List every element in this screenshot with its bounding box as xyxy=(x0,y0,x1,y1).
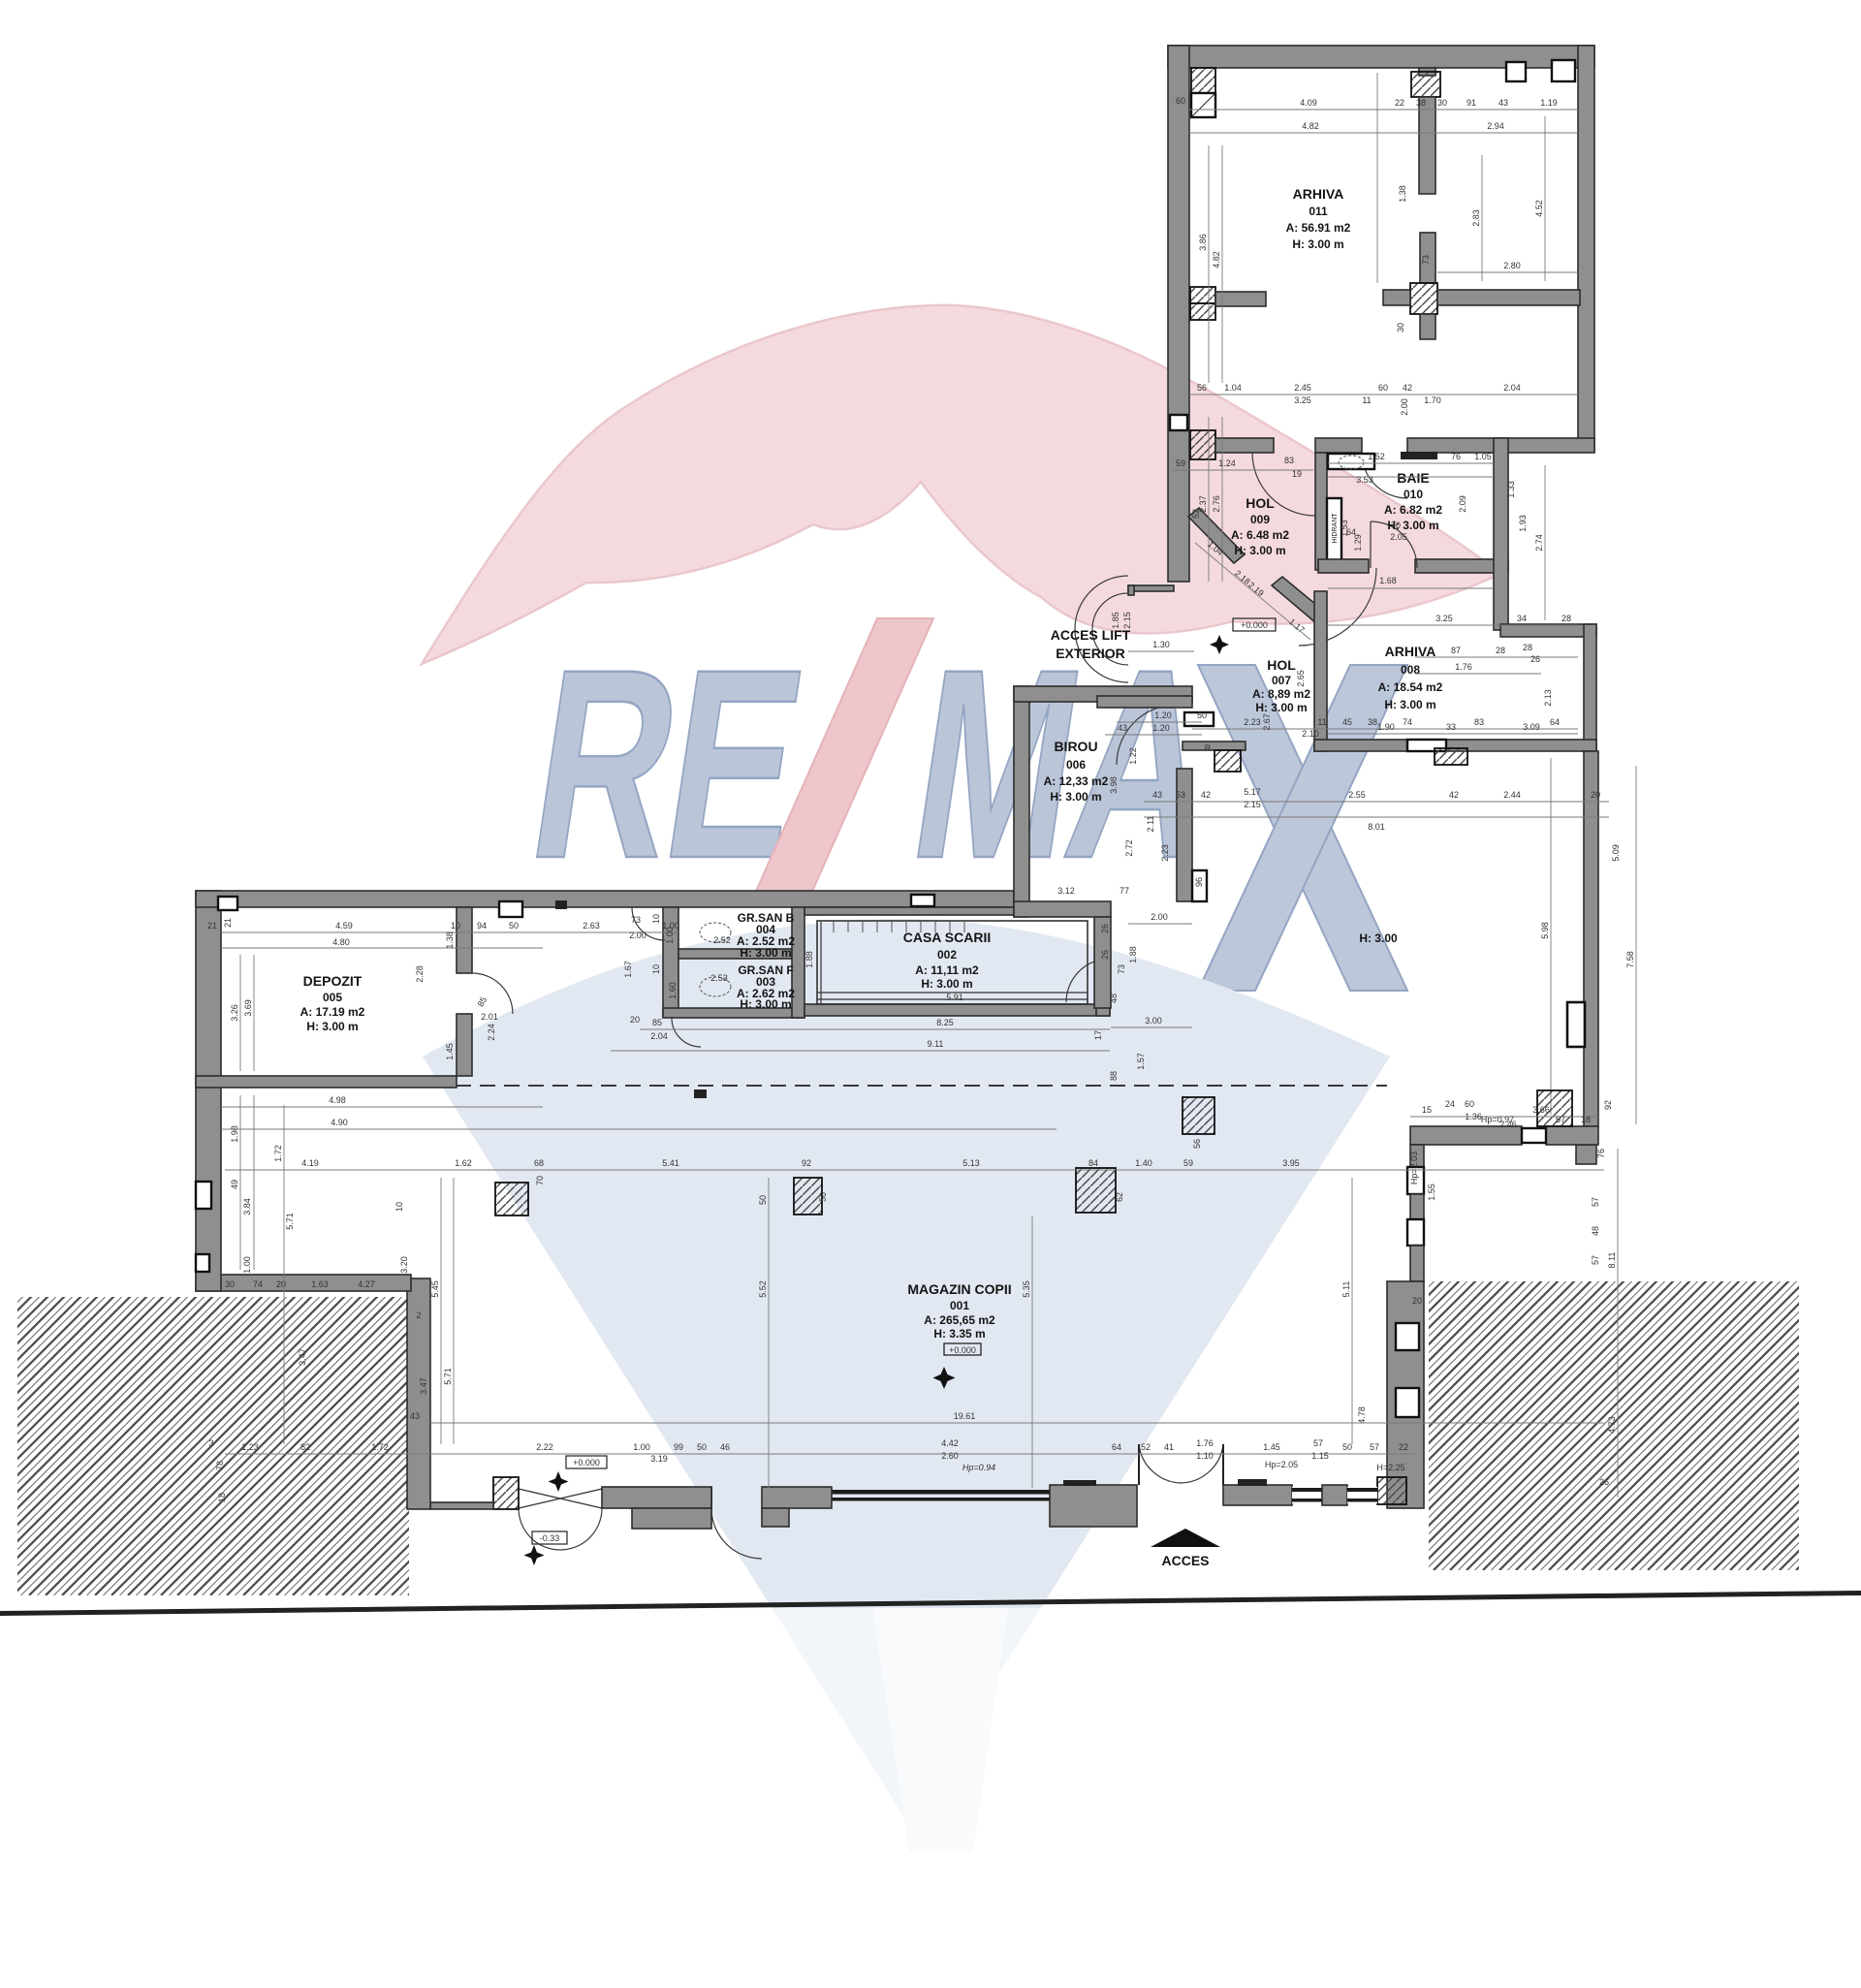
svg-text:26: 26 xyxy=(1100,950,1110,960)
svg-text:42: 42 xyxy=(1201,790,1211,800)
svg-text:Hp=0.94: Hp=0.94 xyxy=(962,1463,995,1472)
svg-text:007: 007 xyxy=(1272,674,1291,687)
svg-text:HOL: HOL xyxy=(1267,657,1296,673)
svg-text:2.53: 2.53 xyxy=(710,973,728,983)
svg-text:60: 60 xyxy=(1378,383,1388,393)
svg-text:H: 3.00 m: H: 3.00 m xyxy=(921,977,972,991)
svg-text:1.63: 1.63 xyxy=(311,1279,329,1289)
svg-text:45: 45 xyxy=(1342,717,1352,727)
svg-text:MAGAZIN COPII: MAGAZIN COPII xyxy=(907,1281,1011,1297)
svg-text:5.35: 5.35 xyxy=(1022,1280,1031,1298)
svg-text:96: 96 xyxy=(1194,877,1204,887)
svg-text:10: 10 xyxy=(451,921,460,931)
svg-text:74: 74 xyxy=(1403,717,1412,727)
svg-text:2.04: 2.04 xyxy=(1503,383,1521,393)
svg-text:H=2.25: H=2.25 xyxy=(1376,1463,1404,1472)
svg-text:011: 011 xyxy=(1309,205,1328,218)
svg-text:38: 38 xyxy=(1368,717,1377,727)
svg-text:57: 57 xyxy=(1591,1197,1600,1207)
svg-text:HOL: HOL xyxy=(1246,495,1275,511)
svg-text:4.82: 4.82 xyxy=(1212,251,1221,268)
svg-text:H: 3.00 m: H: 3.00 m xyxy=(1234,544,1285,557)
svg-text:1.22: 1.22 xyxy=(1128,747,1138,765)
svg-text:4.98: 4.98 xyxy=(329,1095,346,1105)
svg-text:HIDRANT: HIDRANT xyxy=(1332,513,1339,544)
svg-text:5.52: 5.52 xyxy=(758,1280,768,1298)
svg-text:DEPOZIT: DEPOZIT xyxy=(303,973,363,989)
svg-text:1.76: 1.76 xyxy=(1455,662,1472,672)
svg-text:42: 42 xyxy=(1403,383,1412,393)
svg-text:41: 41 xyxy=(1164,1442,1174,1452)
svg-text:2.83: 2.83 xyxy=(1471,209,1481,227)
svg-text:18: 18 xyxy=(217,1493,227,1502)
svg-text:2.00: 2.00 xyxy=(1400,398,1409,416)
svg-text:50: 50 xyxy=(1197,710,1207,720)
svg-text:1.24: 1.24 xyxy=(1218,458,1236,468)
svg-text:99: 99 xyxy=(674,1442,683,1452)
svg-text:1.15: 1.15 xyxy=(1311,1451,1329,1461)
svg-text:28: 28 xyxy=(1523,643,1532,652)
svg-text:1.30: 1.30 xyxy=(1152,640,1170,649)
svg-text:H: 3.00 m: H: 3.00 m xyxy=(1384,698,1435,711)
svg-text:4.52: 4.52 xyxy=(1534,200,1544,217)
svg-text:62: 62 xyxy=(1115,1192,1124,1202)
svg-text:2.28: 2.28 xyxy=(415,965,425,983)
svg-text:009: 009 xyxy=(1250,513,1270,526)
svg-text:1.38: 1.38 xyxy=(445,931,455,949)
svg-text:1.62: 1.62 xyxy=(455,1158,472,1168)
svg-text:1.36: 1.36 xyxy=(1465,1112,1482,1121)
svg-text:33: 33 xyxy=(1446,722,1456,732)
svg-text:1.00: 1.00 xyxy=(665,927,675,944)
svg-text:ARHIVA: ARHIVA xyxy=(1293,186,1344,202)
svg-text:+0.000: +0.000 xyxy=(1241,620,1268,630)
svg-text:1.67: 1.67 xyxy=(623,961,633,978)
svg-text:60: 60 xyxy=(1176,96,1185,106)
svg-text:002: 002 xyxy=(937,948,957,962)
svg-text:5.71: 5.71 xyxy=(443,1368,453,1385)
svg-text:1.88: 1.88 xyxy=(1128,946,1138,963)
svg-text:4.09: 4.09 xyxy=(1300,98,1317,108)
svg-text:20: 20 xyxy=(1591,790,1600,800)
svg-text:22: 22 xyxy=(1395,98,1404,108)
svg-text:1.72: 1.72 xyxy=(273,1145,283,1162)
svg-text:1.93: 1.93 xyxy=(1518,515,1528,532)
svg-text:5.09: 5.09 xyxy=(1611,844,1621,862)
svg-text:2.45: 2.45 xyxy=(1294,383,1311,393)
svg-text:26: 26 xyxy=(1100,924,1110,933)
svg-text:2.52: 2.52 xyxy=(713,935,731,945)
svg-text:8.01: 8.01 xyxy=(1368,822,1385,832)
svg-text:1.90: 1.90 xyxy=(1377,722,1395,732)
svg-text:48: 48 xyxy=(1591,1226,1600,1236)
svg-text:87: 87 xyxy=(1451,646,1461,655)
svg-text:3.20: 3.20 xyxy=(399,1256,409,1274)
svg-text:19: 19 xyxy=(1292,469,1302,479)
svg-text:59: 59 xyxy=(1183,1158,1193,1168)
svg-text:20: 20 xyxy=(1412,1296,1422,1306)
svg-text:2.10: 2.10 xyxy=(1302,729,1319,739)
svg-text:1.53: 1.53 xyxy=(1340,520,1349,537)
svg-text:94: 94 xyxy=(477,921,487,931)
svg-text:A: 265,65 m2: A: 265,65 m2 xyxy=(924,1313,995,1327)
svg-text:2.15: 2.15 xyxy=(1244,800,1261,809)
svg-text:5.71: 5.71 xyxy=(285,1213,295,1230)
svg-text:2.65: 2.65 xyxy=(1296,670,1306,687)
svg-text:3.25: 3.25 xyxy=(1294,395,1311,405)
svg-text:A: 11,11 m2: A: 11,11 m2 xyxy=(915,963,979,977)
svg-text:+0.000: +0.000 xyxy=(949,1345,976,1355)
svg-text:50: 50 xyxy=(1342,1442,1352,1452)
svg-text:84: 84 xyxy=(1088,1158,1098,1168)
svg-text:BIROU: BIROU xyxy=(1054,739,1097,754)
svg-text:-0.33: -0.33 xyxy=(540,1533,560,1543)
svg-text:70: 70 xyxy=(1391,521,1401,530)
svg-text:1.60: 1.60 xyxy=(668,982,678,999)
svg-text:11: 11 xyxy=(1362,395,1371,405)
svg-text:H: 3.35 m: H: 3.35 m xyxy=(933,1327,985,1341)
svg-text:H: 3.00 m: H: 3.00 m xyxy=(740,997,791,1011)
svg-text:50: 50 xyxy=(818,1192,828,1202)
svg-text:H: 3.00 m: H: 3.00 m xyxy=(740,946,791,960)
svg-text:2.01: 2.01 xyxy=(481,1012,498,1022)
svg-text:57: 57 xyxy=(1313,1438,1323,1448)
svg-text:85: 85 xyxy=(652,1018,662,1027)
svg-text:2.55: 2.55 xyxy=(1348,790,1366,800)
svg-text:R: R xyxy=(1205,743,1212,753)
svg-text:3.12: 3.12 xyxy=(1057,886,1075,896)
svg-text:28: 28 xyxy=(1561,614,1571,623)
svg-text:19.61: 19.61 xyxy=(954,1411,976,1421)
svg-text:21: 21 xyxy=(223,918,233,928)
svg-text:1.10: 1.10 xyxy=(1196,1451,1214,1461)
svg-text:77: 77 xyxy=(1120,886,1129,896)
svg-text:5.17: 5.17 xyxy=(1244,787,1261,797)
svg-text:46: 46 xyxy=(720,1442,730,1452)
svg-text:20: 20 xyxy=(630,1015,640,1025)
svg-text:4.82: 4.82 xyxy=(1302,121,1319,131)
svg-text:4.90: 4.90 xyxy=(331,1118,348,1127)
svg-text:4.80: 4.80 xyxy=(332,937,350,947)
svg-text:4.78: 4.78 xyxy=(1357,1406,1367,1424)
svg-text:H: 3.00 m: H: 3.00 m xyxy=(1050,790,1101,804)
svg-text:76: 76 xyxy=(1596,1149,1606,1158)
svg-text:43: 43 xyxy=(1152,790,1162,800)
svg-text:2.00: 2.00 xyxy=(629,931,647,940)
svg-text:1.68: 1.68 xyxy=(1379,576,1397,585)
svg-text:Hp=0.97: Hp=0.97 xyxy=(1481,1115,1514,1124)
svg-text:3.53: 3.53 xyxy=(1356,475,1373,485)
svg-text:3.86: 3.86 xyxy=(1198,234,1208,251)
svg-text:1.23: 1.23 xyxy=(241,1442,259,1452)
svg-text:5.11: 5.11 xyxy=(1341,1281,1351,1298)
svg-text:3.95: 3.95 xyxy=(1282,1158,1300,1168)
svg-text:8.11: 8.11 xyxy=(1607,1252,1617,1269)
svg-text:1.45: 1.45 xyxy=(445,1043,455,1060)
svg-text:53: 53 xyxy=(1176,790,1185,800)
svg-text:78: 78 xyxy=(215,1461,225,1470)
svg-text:1.04: 1.04 xyxy=(1224,383,1242,393)
svg-text:3: 3 xyxy=(208,1438,213,1448)
svg-text:5.98: 5.98 xyxy=(1540,922,1550,939)
svg-text:H: 3.00 m: H: 3.00 m xyxy=(1292,237,1343,251)
svg-text:010: 010 xyxy=(1404,488,1423,501)
svg-text:1.38: 1.38 xyxy=(1398,185,1407,203)
svg-text:2.22: 2.22 xyxy=(536,1442,553,1452)
svg-text:2.23: 2.23 xyxy=(1160,844,1170,862)
svg-text:9.11: 9.11 xyxy=(928,1039,944,1049)
svg-text:A: 6.82 m2: A: 6.82 m2 xyxy=(1384,503,1442,517)
svg-text:70: 70 xyxy=(535,1176,545,1185)
svg-text:4.73: 4.73 xyxy=(1607,1416,1617,1434)
svg-text:18: 18 xyxy=(1581,1115,1591,1124)
svg-text:H: 3.00: H: 3.00 xyxy=(1359,931,1398,945)
svg-text:17: 17 xyxy=(1093,1030,1103,1040)
svg-text:7.58: 7.58 xyxy=(1625,951,1635,968)
svg-text:2.00: 2.00 xyxy=(1151,912,1168,922)
svg-text:2.23: 2.23 xyxy=(1244,717,1261,727)
svg-text:57: 57 xyxy=(1591,1255,1600,1265)
svg-text:H: 3.00 m: H: 3.00 m xyxy=(306,1020,358,1033)
svg-text:1.57: 1.57 xyxy=(1136,1053,1146,1070)
svg-text:64: 64 xyxy=(1112,1442,1121,1452)
svg-text:59: 59 xyxy=(1176,458,1185,468)
svg-text:52: 52 xyxy=(1141,1442,1151,1452)
svg-text:1.20: 1.20 xyxy=(1154,710,1172,720)
svg-text:3.47: 3.47 xyxy=(298,1348,307,1366)
svg-text:1.55: 1.55 xyxy=(1427,1183,1436,1201)
svg-text:2.63: 2.63 xyxy=(583,921,600,931)
svg-text:42: 42 xyxy=(1449,790,1459,800)
svg-text:3.19: 3.19 xyxy=(650,1454,668,1464)
svg-text:1.05: 1.05 xyxy=(1474,452,1492,461)
svg-text:91: 91 xyxy=(1467,98,1476,108)
svg-text:10: 10 xyxy=(394,1202,404,1212)
svg-text:1.20: 1.20 xyxy=(1152,723,1170,733)
svg-text:92: 92 xyxy=(802,1158,811,1168)
svg-text:2.04: 2.04 xyxy=(650,1031,668,1041)
svg-text:006: 006 xyxy=(1066,758,1086,772)
svg-text:3.69: 3.69 xyxy=(243,999,253,1017)
svg-text:43: 43 xyxy=(1118,723,1127,733)
svg-text:1.52: 1.52 xyxy=(1368,452,1385,461)
svg-text:4.42: 4.42 xyxy=(941,1438,959,1448)
svg-text:2.11: 2.11 xyxy=(1146,816,1155,833)
svg-text:2.09: 2.09 xyxy=(1458,495,1467,513)
svg-text:H: 3.00 m: H: 3.00 m xyxy=(1255,701,1307,714)
svg-text:A: 17.19 m2: A: 17.19 m2 xyxy=(300,1005,365,1019)
svg-text:EXTERIOR: EXTERIOR xyxy=(1056,646,1125,661)
svg-text:4.19: 4.19 xyxy=(301,1158,319,1168)
svg-text:8.25: 8.25 xyxy=(936,1018,954,1027)
svg-text:4.27: 4.27 xyxy=(358,1279,375,1289)
svg-text:30: 30 xyxy=(1396,323,1405,332)
svg-text:5.41: 5.41 xyxy=(662,1158,679,1168)
svg-text:56: 56 xyxy=(1197,383,1207,393)
svg-text:Hp=2.05: Hp=2.05 xyxy=(1265,1460,1298,1469)
svg-text:50: 50 xyxy=(697,1442,707,1452)
svg-text:1.98: 1.98 xyxy=(230,1125,239,1143)
svg-text:2: 2 xyxy=(416,1310,421,1320)
svg-text:005: 005 xyxy=(323,991,342,1004)
svg-text:10: 10 xyxy=(651,914,661,924)
svg-text:2.24: 2.24 xyxy=(487,1024,496,1041)
svg-text:008: 008 xyxy=(1401,663,1420,677)
svg-text:1.72: 1.72 xyxy=(371,1442,389,1452)
svg-text:5.13: 5.13 xyxy=(962,1158,980,1168)
svg-text:2.80: 2.80 xyxy=(1503,261,1521,270)
svg-text:001: 001 xyxy=(950,1299,969,1312)
svg-text:1.33: 1.33 xyxy=(1506,481,1516,498)
svg-text:57: 57 xyxy=(1370,1442,1379,1452)
svg-text:ACCES: ACCES xyxy=(1161,1553,1209,1568)
svg-text:57: 57 xyxy=(1556,1115,1565,1124)
svg-text:4.59: 4.59 xyxy=(335,921,353,931)
svg-text:73: 73 xyxy=(1117,964,1126,974)
svg-text:1.29: 1.29 xyxy=(1353,534,1363,552)
svg-text:2.13: 2.13 xyxy=(1543,689,1553,707)
svg-text:48: 48 xyxy=(1109,994,1119,1003)
svg-text:3.25: 3.25 xyxy=(1435,614,1453,623)
svg-text:2.94: 2.94 xyxy=(1487,121,1504,131)
svg-text:2.67: 2.67 xyxy=(1262,713,1272,731)
svg-text:3.98: 3.98 xyxy=(1109,776,1119,794)
svg-text:1.00: 1.00 xyxy=(633,1442,650,1452)
svg-text:Hp=2.03: Hp=2.03 xyxy=(1409,1152,1419,1184)
svg-text:5.45: 5.45 xyxy=(430,1280,440,1298)
svg-text:2.72: 2.72 xyxy=(1124,839,1134,857)
svg-text:2.44: 2.44 xyxy=(1503,790,1521,800)
svg-text:3.26: 3.26 xyxy=(230,1004,239,1022)
svg-text:1.76: 1.76 xyxy=(1196,1438,1214,1448)
svg-text:1.00: 1.00 xyxy=(242,1256,252,1274)
svg-text:74: 74 xyxy=(253,1279,263,1289)
svg-text:26: 26 xyxy=(1530,654,1540,664)
svg-text:76: 76 xyxy=(1451,452,1461,461)
svg-text:A: 56.91 m2: A: 56.91 m2 xyxy=(1286,221,1351,235)
svg-text:21: 21 xyxy=(207,921,217,931)
svg-text:83: 83 xyxy=(1474,717,1484,727)
svg-text:88: 88 xyxy=(1109,1071,1119,1081)
svg-text:3.84: 3.84 xyxy=(242,1198,252,1215)
svg-text:3.09: 3.09 xyxy=(1523,722,1540,732)
svg-text:1.85: 1.85 xyxy=(1111,612,1120,629)
svg-text:BAIE: BAIE xyxy=(1397,470,1429,486)
svg-text:50: 50 xyxy=(509,921,519,931)
svg-text:52: 52 xyxy=(1191,509,1201,519)
svg-text:50: 50 xyxy=(758,1195,768,1205)
svg-text:73: 73 xyxy=(631,915,641,925)
svg-text:1.45: 1.45 xyxy=(1263,1442,1280,1452)
svg-text:1.88: 1.88 xyxy=(804,951,814,968)
svg-text:43: 43 xyxy=(1498,98,1508,108)
svg-text:+0.000: +0.000 xyxy=(573,1458,600,1467)
svg-text:3.47: 3.47 xyxy=(419,1377,428,1395)
svg-text:34: 34 xyxy=(1517,614,1527,623)
svg-text:30: 30 xyxy=(225,1279,235,1289)
svg-text:3.00: 3.00 xyxy=(1145,1016,1162,1026)
svg-text:73: 73 xyxy=(1421,255,1431,265)
svg-text:2.60: 2.60 xyxy=(941,1451,959,1461)
svg-text:15: 15 xyxy=(1422,1105,1432,1115)
svg-text:20: 20 xyxy=(276,1279,286,1289)
svg-text:A: 18.54 m2: A: 18.54 m2 xyxy=(1378,680,1443,694)
svg-text:2.74: 2.74 xyxy=(1534,534,1544,552)
svg-text:30: 30 xyxy=(1437,98,1447,108)
svg-text:56: 56 xyxy=(1192,1139,1202,1149)
svg-text:60: 60 xyxy=(1465,1099,1474,1109)
svg-text:68: 68 xyxy=(534,1158,544,1168)
svg-text:82: 82 xyxy=(300,1442,310,1452)
svg-text:43: 43 xyxy=(410,1411,420,1421)
svg-text:24: 24 xyxy=(1445,1099,1455,1109)
svg-text:2.05: 2.05 xyxy=(1390,532,1407,542)
svg-text:2.76: 2.76 xyxy=(1212,495,1221,513)
svg-text:A: 6.48 m2: A: 6.48 m2 xyxy=(1231,528,1289,542)
svg-text:49: 49 xyxy=(230,1180,239,1189)
svg-text:22: 22 xyxy=(1399,1442,1408,1452)
svg-text:83: 83 xyxy=(1284,456,1294,465)
svg-text:1.40: 1.40 xyxy=(1135,1158,1152,1168)
svg-text:26: 26 xyxy=(1599,1477,1609,1487)
svg-text:1.19: 1.19 xyxy=(1540,98,1558,108)
svg-text:64: 64 xyxy=(1550,717,1560,727)
svg-text:2.15: 2.15 xyxy=(1122,612,1132,629)
svg-text:CASA SCARII: CASA SCARII xyxy=(903,930,992,945)
svg-text:11: 11 xyxy=(1317,717,1326,727)
svg-text:92: 92 xyxy=(1603,1100,1613,1110)
svg-text:10: 10 xyxy=(651,964,661,974)
svg-text:A: 8,89 m2: A: 8,89 m2 xyxy=(1252,687,1310,701)
svg-text:38: 38 xyxy=(1416,98,1426,108)
svg-text:A: 12,33 m2: A: 12,33 m2 xyxy=(1044,774,1109,788)
svg-text:5.91: 5.91 xyxy=(946,993,963,1002)
svg-text:3.66: 3.66 xyxy=(1532,1105,1550,1115)
svg-text:1.70: 1.70 xyxy=(1424,395,1441,405)
svg-text:28: 28 xyxy=(1496,646,1505,655)
